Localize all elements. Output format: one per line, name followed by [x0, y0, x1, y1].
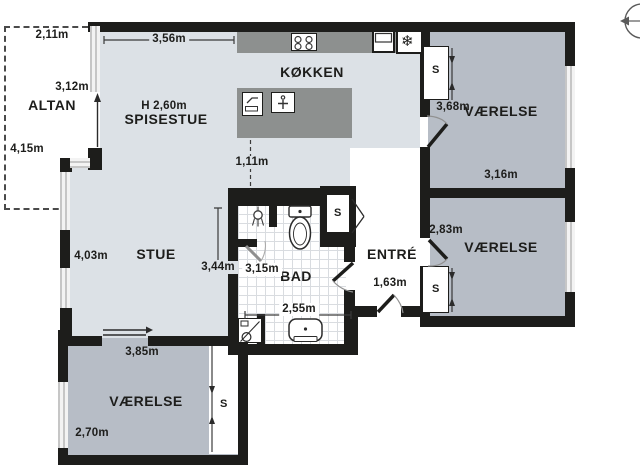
wall-living-left — [60, 308, 72, 346]
dining-name: SPISESTUE — [124, 112, 207, 127]
bedroom-bottom-left-closet-strip — [209, 340, 238, 454]
window-bedroom-bl — [58, 382, 68, 448]
wall-bedroom-bl-right — [238, 330, 248, 465]
living-name: STUE — [136, 247, 175, 262]
wall-bath-top — [228, 188, 322, 206]
closet-hall-label: S — [334, 207, 342, 219]
bedroom-bl-width-dim: 3,85m — [125, 346, 159, 359]
wall-bedroom-bl-left — [58, 448, 68, 465]
wall-right — [565, 32, 575, 66]
wall-bedroom-bl-bottom — [58, 455, 248, 465]
floor-plan: ❄ — [0, 0, 640, 470]
wall-step-corner — [88, 148, 102, 170]
island-sink — [271, 92, 295, 113]
entry-door-dim: 1,63m — [373, 277, 407, 290]
stove — [291, 33, 317, 51]
balcony-door-dim: 3,12m — [55, 81, 89, 94]
bedroom-bl-depth-dim: 2,70m — [75, 427, 109, 440]
window-step — [70, 158, 90, 168]
bedroom-bl-name: VÆRELSE — [109, 394, 183, 409]
fridge-snowflake-icon: ❄ — [401, 34, 414, 49]
island-appliance — [242, 92, 263, 116]
wall-living-left — [60, 230, 70, 268]
bath-name: BAD — [280, 269, 312, 284]
dining-window-dim: 3,56m — [149, 33, 189, 46]
living-depth-dim: 3,44m — [198, 261, 238, 274]
compass-north-icon — [620, 4, 640, 38]
window-bedroom-tr — [565, 66, 575, 168]
balcony-name: ALTAN — [28, 98, 76, 113]
wall-shower-stub — [238, 239, 257, 247]
wall-bath-right — [344, 290, 355, 344]
closet-mr-label: S — [432, 283, 440, 295]
bedroom-mr-depth-dim: 2,83m — [429, 224, 463, 237]
wall-bath-bottom — [236, 344, 358, 355]
island-clearance-dim: 1,11m — [233, 156, 272, 169]
balcony-length-dim: 4,15m — [10, 143, 44, 156]
wall-shower-stub — [269, 206, 277, 227]
entry-name: ENTRÉ — [367, 247, 417, 262]
oven-unit — [372, 30, 395, 53]
wall-bedroom-bl-top — [148, 336, 240, 346]
balcony-width-dim: 2,11m — [36, 29, 69, 42]
wall-bath-right — [344, 247, 355, 262]
washing-machine — [238, 318, 262, 343]
closet-bl-label: S — [220, 398, 228, 410]
window-bedroom-mr — [565, 222, 575, 292]
kitchen-name: KØKKEN — [280, 65, 344, 80]
bedroom-tr-width-dim: 3,16m — [484, 169, 518, 182]
closet-tr-label: S — [432, 64, 440, 76]
bedroom-mid-right-floor — [430, 198, 566, 316]
window-living-upper — [60, 172, 70, 230]
window-dining-left — [90, 26, 100, 92]
wall-bedroom-divider — [420, 188, 568, 198]
bedroom-tr-name: VÆRELSE — [464, 104, 538, 119]
wall-top — [88, 22, 575, 32]
bath-width-dim: 3,15m — [242, 263, 282, 276]
window-living-lower — [60, 268, 70, 308]
wall-bottom-right — [420, 316, 575, 327]
living-width-dim: 4,03m — [74, 250, 108, 263]
bath-depth-dim: 2,55m — [279, 303, 319, 316]
bedroom-mr-name: VÆRELSE — [464, 240, 538, 255]
